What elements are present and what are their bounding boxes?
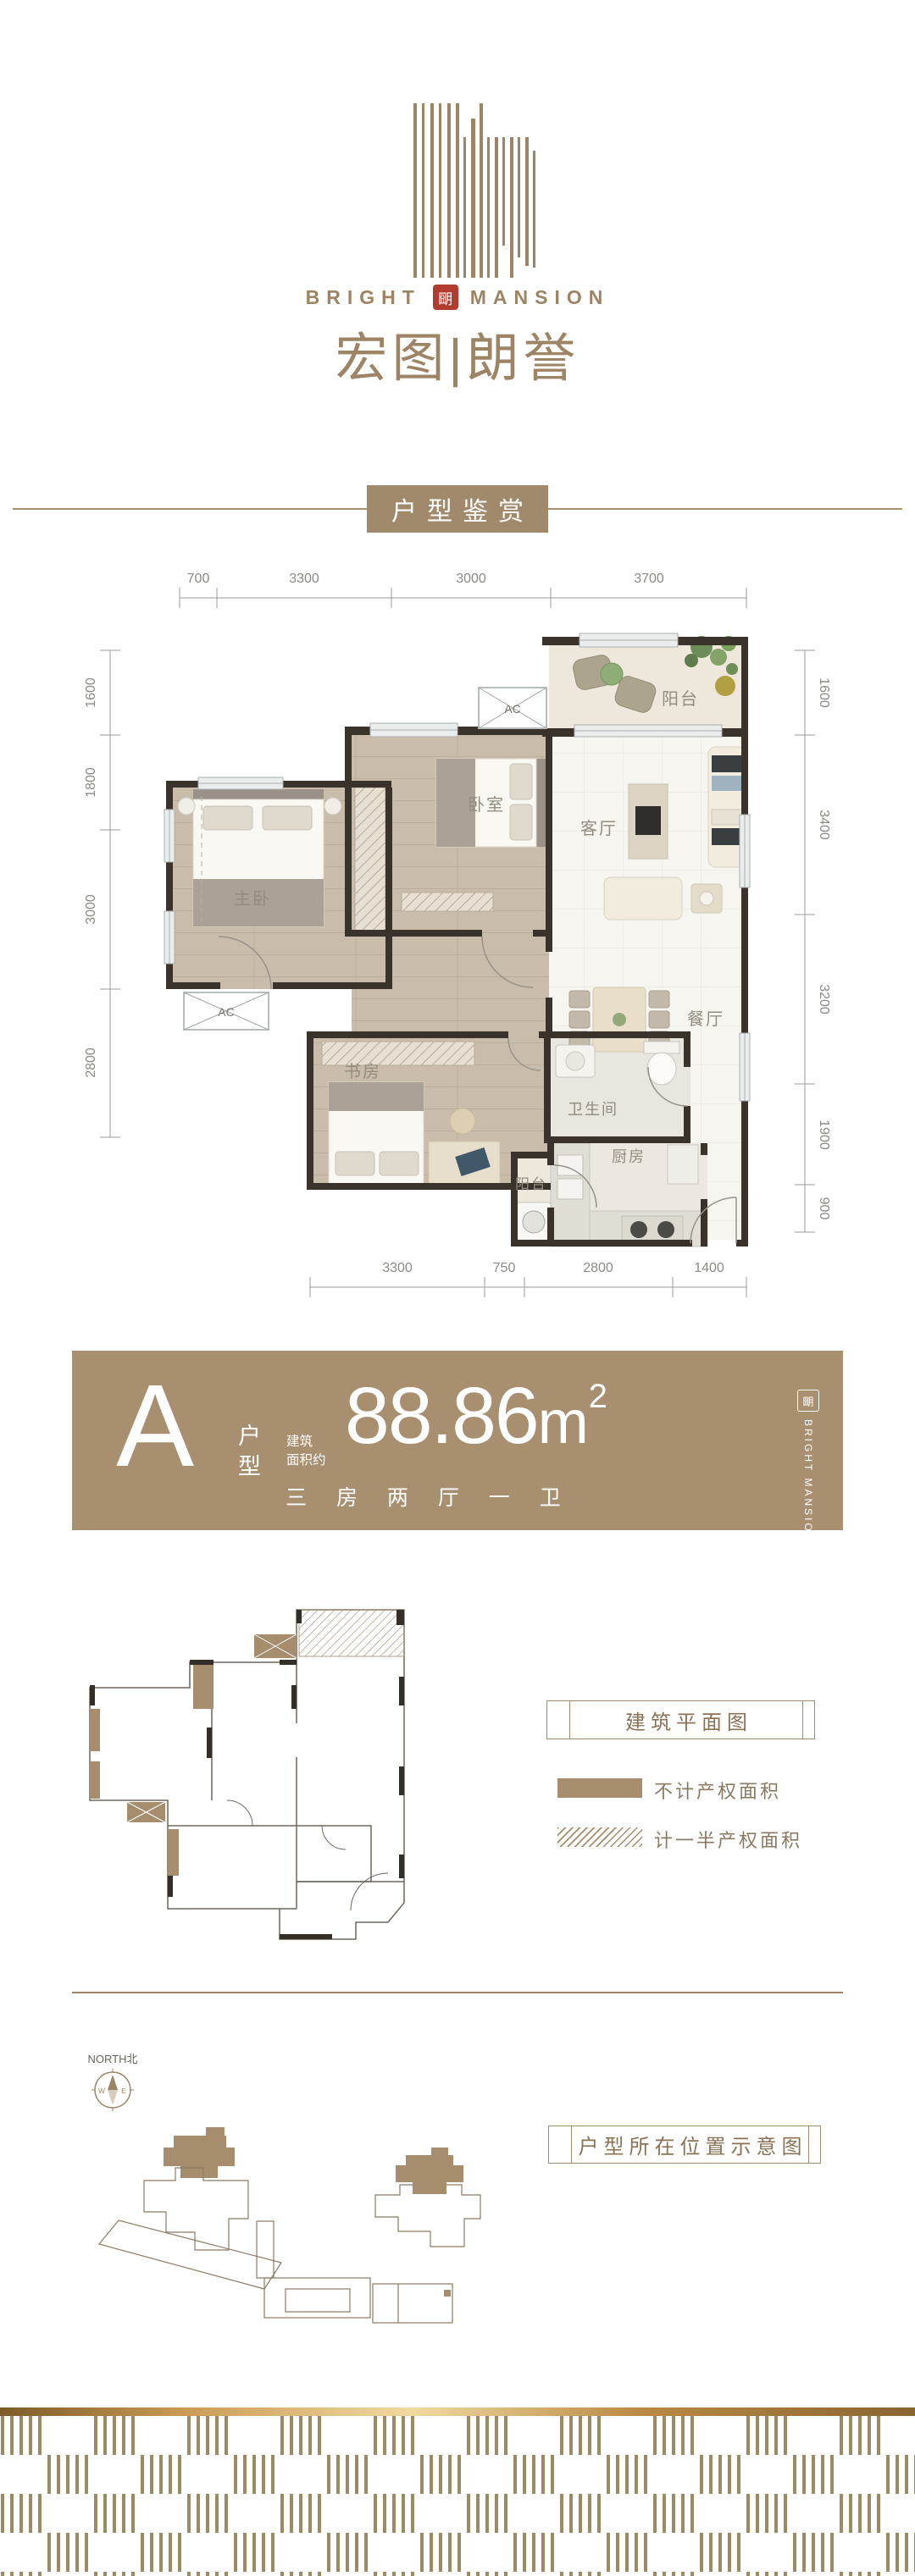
building-plan-drawing [0, 1575, 915, 2032]
titlebox-left-cell [547, 1701, 570, 1739]
location-title: 户型所在位置示意图 [572, 2126, 808, 2163]
banner-brand-mark: 朙 BRIGHT MANSION [797, 1390, 819, 1543]
footprint-outline [90, 1610, 404, 1939]
dim-bottom-3: 2800 [583, 1261, 613, 1275]
logo-text-left: BRIGHT [306, 286, 421, 309]
dim-left-2: 1800 [84, 767, 98, 798]
area-prefix-line2: 面积约 [286, 1451, 326, 1470]
label-bath: 卫生间 [568, 1101, 618, 1118]
unit-type-char2: 型 [238, 1456, 261, 1479]
dim-top-1: 700 [187, 572, 210, 586]
dim-top-3: 3000 [456, 572, 486, 586]
compass-east-label: E [121, 2087, 126, 2095]
compass-icon: NORTH北 W E [88, 2053, 138, 2111]
area-unit: m [538, 1392, 589, 1453]
dim-left-4: 2800 [84, 1048, 98, 1078]
dim-bottom-4: 1400 [694, 1261, 724, 1275]
area-prefix-line1: 建筑 [286, 1433, 326, 1451]
dim-left-1: 1600 [84, 677, 98, 708]
title-rule-right [548, 508, 902, 510]
legend-solid-label: 不计产权面积 [654, 1777, 781, 1804]
location-titlebox-left-cell [549, 2126, 572, 2163]
label-kitchen: 厨房 [612, 1148, 646, 1165]
location-titlebox-right-cell [808, 2126, 820, 2163]
legend-solid-swatch [557, 1778, 642, 1798]
dim-top-4: 3700 [634, 572, 664, 586]
layout-description: 三 房 两 厅 一 卫 [286, 1481, 573, 1512]
logo-chinese-name: 宏图|朗誉 [0, 315, 915, 391]
titlebox-right-cell [802, 1701, 814, 1739]
dim-left-3: 3000 [84, 894, 98, 925]
logo-seal-icon: 朙 [433, 285, 458, 310]
logo-text-right: MANSION [470, 286, 610, 309]
area-value: 88.86 m 2 [345, 1376, 607, 1457]
dim-right-2: 3400 [817, 810, 831, 840]
tower-2-highlight [396, 2148, 463, 2297]
area-superscript: 2 [589, 1379, 607, 1413]
unit-type-char1: 户 [238, 1425, 261, 1448]
building-plan-title: 建筑平面图 [570, 1701, 802, 1739]
section-title: 户型鉴赏 [367, 485, 548, 533]
ac-label-left: AC [218, 1005, 234, 1019]
unit-banner: A 户 型 建筑 面积约 88.86 m 2 三 房 两 厅 一 卫 朙 BRI… [72, 1351, 843, 1530]
dim-top-2: 3300 [289, 572, 319, 586]
tower-1-highlight [164, 2127, 235, 2178]
dim-bottom-2: 750 [493, 1261, 516, 1275]
building-plan-titlebox: 建筑平面图 [546, 1700, 815, 1739]
footer-gold-bar [0, 2407, 915, 2416]
banner-brand-vertical: BRIGHT MANSION [802, 1419, 814, 1543]
label-bedroom: 卧室 [468, 795, 505, 815]
label-dining: 餐厅 [687, 1009, 724, 1029]
compass-west-label: W [98, 2087, 105, 2095]
logo-wordmark: BRIGHT 朙 MANSION [0, 285, 915, 310]
footer-pattern [0, 2416, 915, 2576]
title-rule-left [13, 508, 367, 510]
area-prefix: 建筑 面积约 [286, 1433, 326, 1471]
area-number: 88.86 [345, 1376, 538, 1457]
ac-label-top: AC [504, 702, 520, 716]
no-property-area-fills [90, 1634, 297, 1876]
half-area-balcony-hatch [299, 1610, 404, 1656]
dim-right-4: 1900 [817, 1119, 831, 1150]
poster-page: BRIGHT 朙 MANSION 宏图|朗誉 户型鉴赏 [0, 0, 915, 2576]
dim-right-5: 900 [817, 1197, 831, 1220]
compass-north-label: NORTH北 [88, 2053, 138, 2065]
dim-bottom-1: 3300 [382, 1261, 413, 1275]
label-master: 主卧 [234, 889, 271, 909]
label-balcony-bottom: 阳台 [515, 1176, 547, 1192]
label-balcony-top: 阳台 [662, 689, 699, 709]
legend-hatch-label: 计一半产权面积 [654, 1826, 802, 1853]
dim-right-1: 1600 [817, 677, 831, 708]
logo-building-bars-icon [410, 100, 546, 281]
location-titlebox: 户型所在位置示意图 [548, 2125, 821, 2164]
floor-plan: AC AC 阳台 客厅 卧室 主卧 书房 卫生间 厨房 阳台 餐厅 [0, 559, 915, 1321]
label-living: 客厅 [580, 819, 618, 838]
unit-letter: A [116, 1368, 194, 1484]
unit-type-label: 户 型 [238, 1425, 261, 1479]
label-study: 书房 [344, 1062, 381, 1081]
legend-hatch-swatch [557, 1827, 642, 1847]
banner-seal-icon: 朙 [797, 1390, 819, 1412]
dim-right-3: 3200 [817, 984, 831, 1014]
section-divider [72, 1992, 843, 1993]
site-plan: NORTH北 W E [0, 2032, 915, 2388]
